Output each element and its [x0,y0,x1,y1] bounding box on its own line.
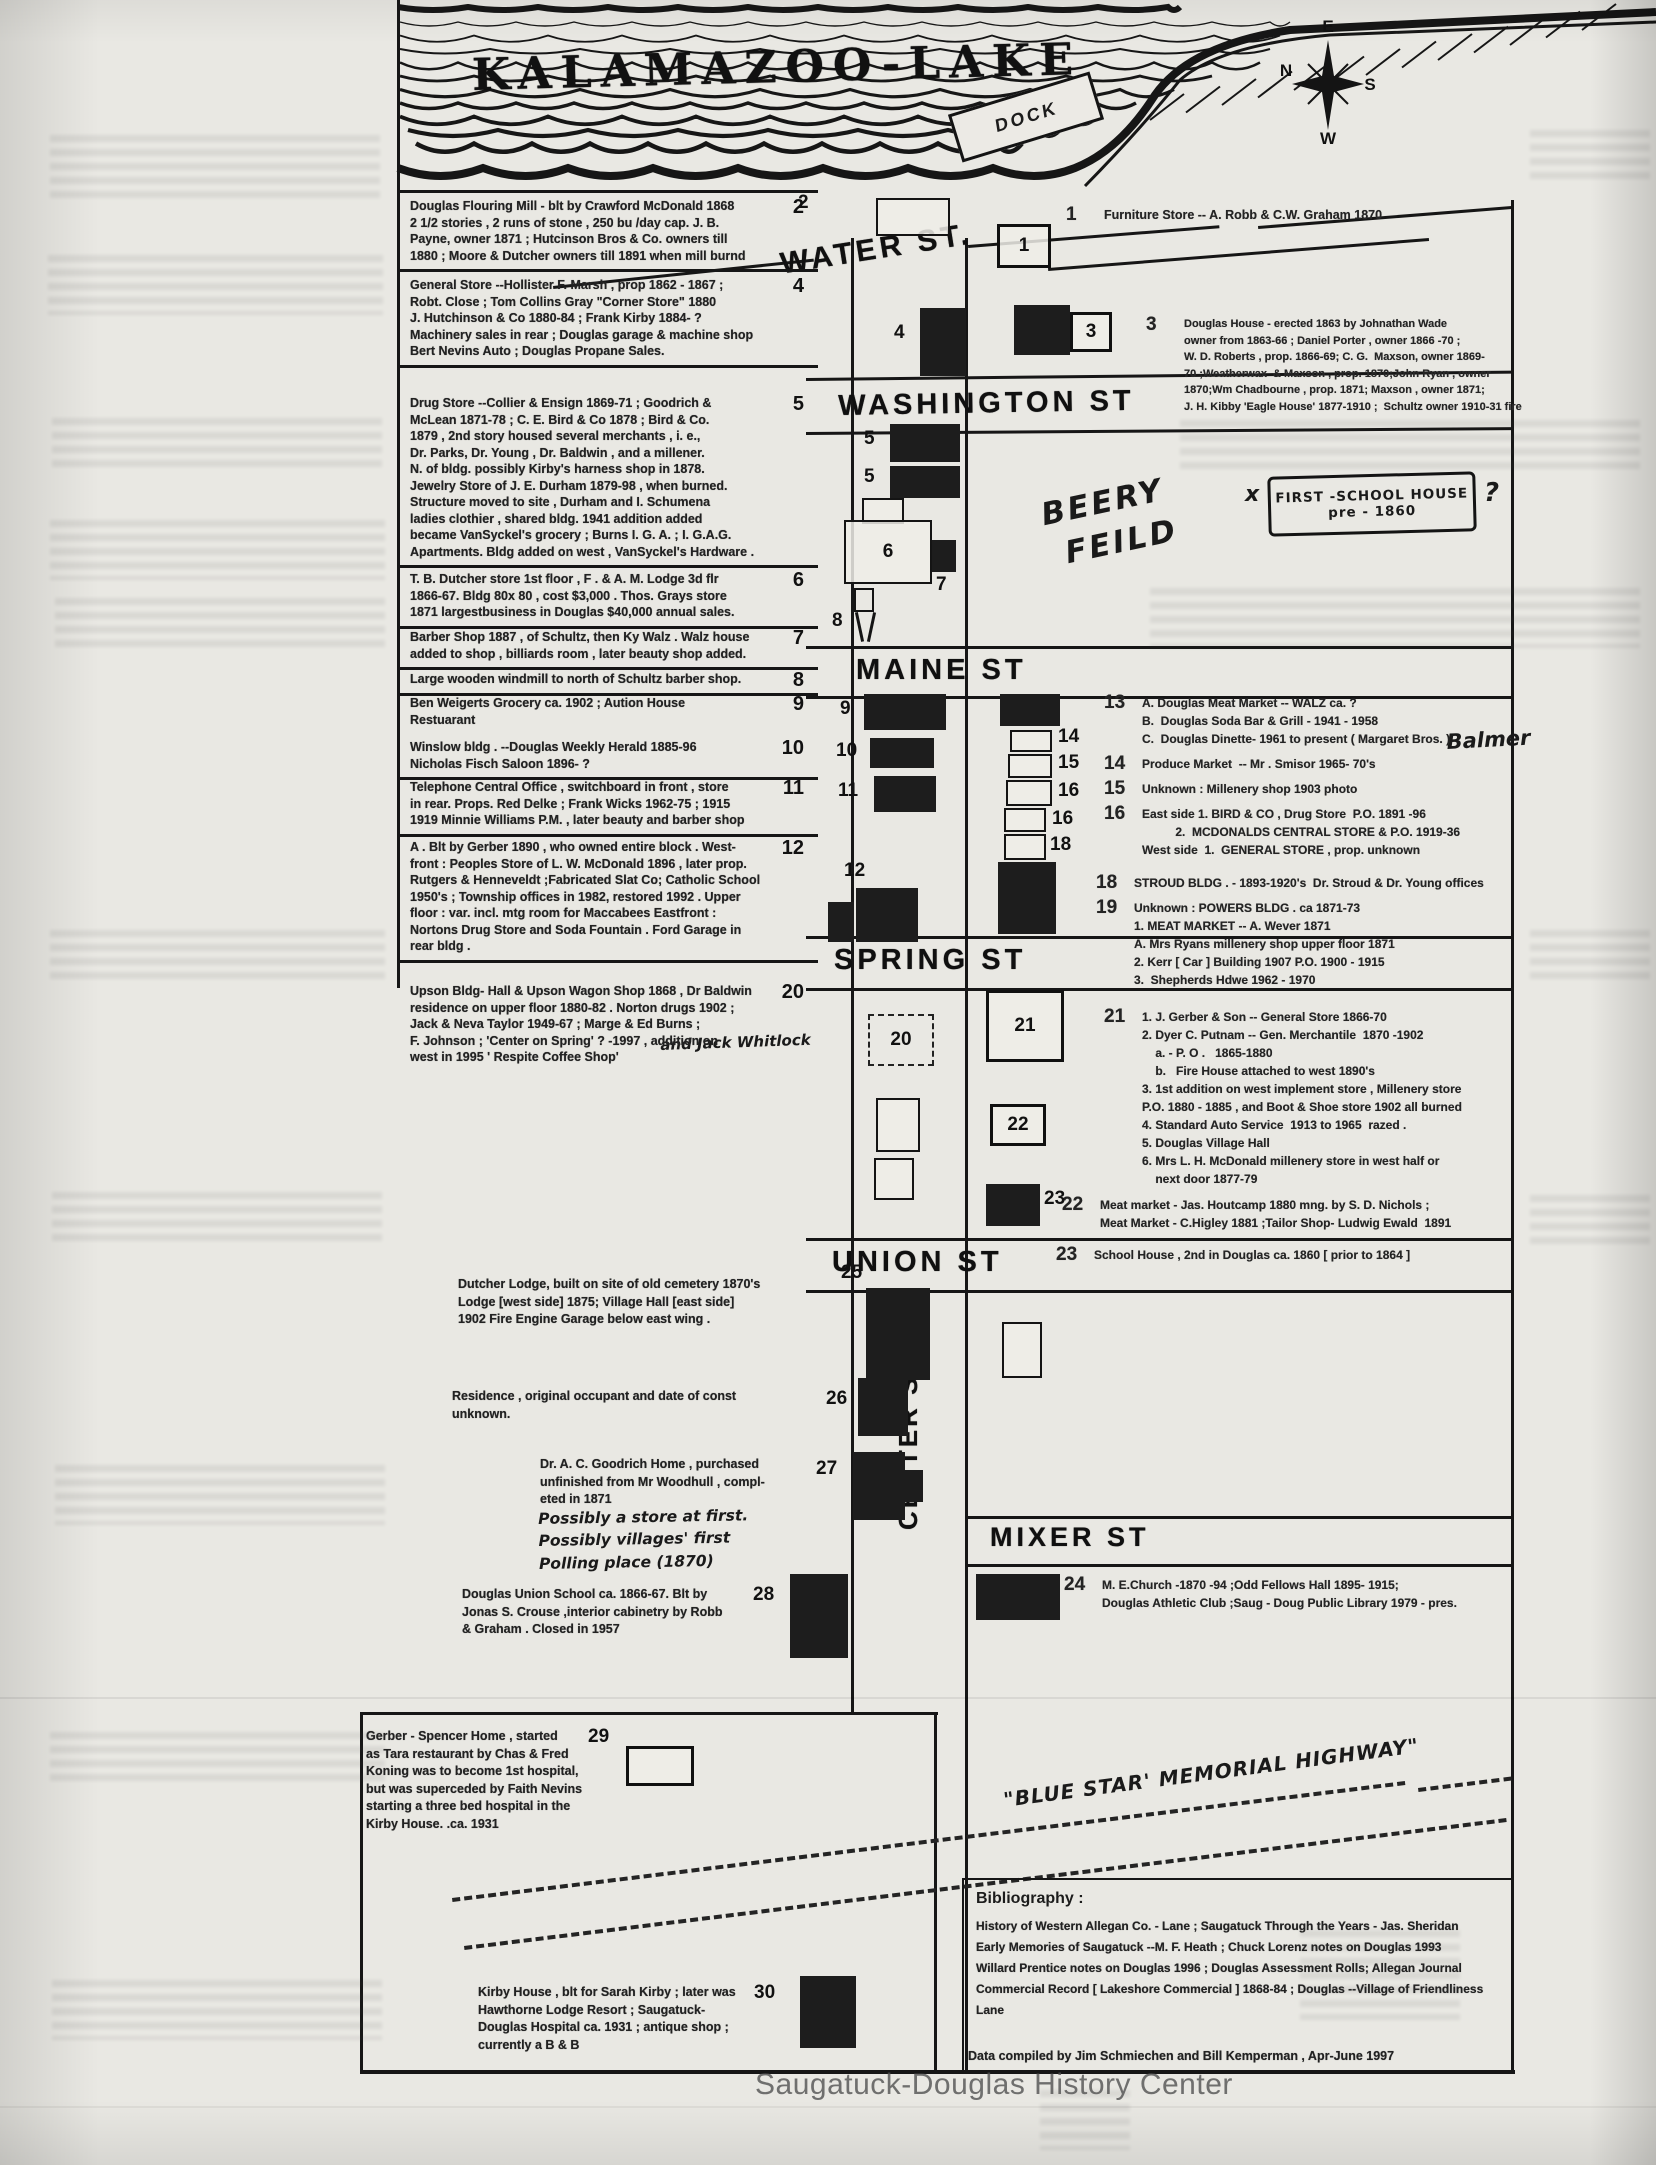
note-number: 13 [1104,692,1125,714]
windmill-head [854,588,874,612]
building-number: 22 [1007,1114,1028,1136]
building-16 [1004,808,1046,832]
note-group: 22Meat market - Jas. Houtcamp 1880 mng. … [1062,1196,1451,1239]
left-note-block: Telephone Central Office , switchboard i… [398,774,818,837]
note-group: 1Furniture Store -- A. Robb & C.W. Graha… [1066,206,1382,232]
scan-noise [52,418,382,473]
first-school-house-box: FIRST -SCHOOL HOUSE pre - 1860 [1267,471,1476,536]
note-number: 9 [793,693,804,716]
building-28 [790,1574,848,1658]
note-text: M. E.Church -1870 -94 ;Odd Fellows Hall … [1102,1576,1457,1612]
note-group: 211. J. Gerber & Son -- General Store 18… [1104,1008,1462,1195]
building-number: 5 [864,428,875,450]
possibly-store-annotation: Possibly a store at first. Possibly vill… [538,1504,749,1575]
building [903,1470,923,1502]
building-number: 16 [1058,780,1079,802]
note-number: 3 [1146,314,1157,336]
building-number: 8 [832,610,843,632]
building-number: 12 [844,860,865,882]
shore-hatch [1222,79,1256,105]
building-30 [800,1976,856,2048]
building-15 [1008,754,1052,778]
building-number: 16 [1052,808,1073,830]
building [976,1574,1060,1620]
note-number: 16 [1104,803,1125,825]
note-text: East side 1. BIRD & CO , Drug Store P.O.… [1142,805,1460,859]
windmill-icon [854,588,878,644]
mixer-st-line [968,1516,1513,1519]
note-text: Drug Store --Collier & Ensign 1869-71 ; … [410,395,778,560]
note-entry: 211. J. Gerber & Son -- General Store 18… [1104,1008,1462,1188]
bibliography-box: Bibliography : History of Western Allega… [962,1878,1513,2070]
note-number: 18 [1096,872,1117,894]
building-number: 3 [1086,321,1097,343]
compass-e: E [1322,17,1333,36]
building-number: 29 [588,1726,609,1748]
center-st-line-lower-west [934,1712,937,2074]
lake-wave [416,144,1022,152]
note-entry: 3Douglas House - erected 1863 by Johnath… [1146,316,1522,415]
note-entry: 19Unknown : POWERS BLDG . ca 1871-73 1. … [1096,899,1484,989]
building-27 [853,1452,905,1520]
lake-wave [398,7,1180,10]
note-entry: 23School House , 2nd in Douglas ca. 1860… [1056,1246,1410,1264]
building-19 [998,862,1056,934]
blue-star-highway-line [1418,1777,1512,1792]
standalone-note: Douglas Union School ca. 1866-67. Blt by… [462,1586,762,1639]
bibliography-heading: Bibliography : [976,1890,1499,1908]
note-text: Ben Weigerts Grocery ca. 1902 ; Aution H… [410,695,778,728]
building-10 [870,738,934,768]
building-number: 27 [816,1458,837,1480]
note-text: General Store --Hollister F. Marsh , pro… [410,277,778,360]
note-number: 11 [783,777,804,800]
note-text: Upson Bldg- Hall & Upson Wagon Shop 1868… [410,983,778,1066]
building-5 [890,424,960,462]
building-12 [856,888,918,942]
note-number: 19 [1096,897,1117,919]
note-text: Produce Market -- Mr . Smisor 1965- 70's [1142,755,1460,773]
building-number: 30 [754,1982,775,2004]
left-note-block: Douglas Flouring Mill - blt by Crawford … [398,193,818,272]
note-group: 23School House , 2nd in Douglas ca. 1860… [1056,1246,1410,1271]
building-number: 15 [1058,752,1079,774]
right-map-border [1511,200,1514,2072]
building-23 [986,1184,1040,1226]
building-4 [920,308,966,376]
building-number: 20 [890,1029,911,1051]
note-text: Unknown : Millenery shop 1903 photo [1142,780,1460,798]
scan-noise [50,520,385,580]
building-25 [866,1288,930,1380]
building-20: 20 [868,1014,934,1066]
water-st-line [1048,238,1429,271]
note-text: Douglas House - erected 1863 by Johnatha… [1184,316,1522,415]
note-text: Unknown : POWERS BLDG . ca 1871-73 1. ME… [1134,899,1484,989]
building-number: 9 [840,698,851,720]
scan-noise [52,1192,382,1242]
first-school-house-date: pre - 1860 [1328,503,1416,521]
scanned-map-page: KALAMAZOO-LAKE DOCK E N S W WATER ST. WA… [0,0,1656,2165]
building-21: 21 [986,990,1064,1062]
shore-hatch [1438,34,1472,60]
note-text: A . Blt by Gerber 1890 , who owned entir… [410,839,778,955]
building-3: 3 [1070,312,1112,352]
building-6: 6 [844,520,932,584]
center-st-line-east [965,238,968,2074]
dock-text: DOCK [993,97,1058,137]
note-entry: 18STROUD BLDG . - 1893-1920's Dr. Stroud… [1096,874,1484,892]
note-text: Meat market - Jas. Houtcamp 1880 mng. by… [1100,1196,1451,1232]
compass-w: W [1320,129,1337,146]
paper-crease [0,1697,1656,1699]
left-note-block: General Store --Hollister F. Marsh , pro… [398,272,818,368]
building-14 [1010,730,1052,752]
note-number: 23 [1056,1244,1077,1266]
scan-noise [55,1465,385,1525]
note-text: T. B. Dutcher store 1st floor , F . & A.… [410,571,778,621]
street-label-washington: WASHINGTON ST [838,385,1135,423]
building-number: 6 [883,541,894,563]
building-number: 2 [798,192,809,214]
building-number: 1 [1019,235,1030,257]
building-2 [876,198,950,236]
watermark-text: Saugatuck-Douglas History Center [755,2068,1233,2102]
left-note-block: Ben Weigerts Grocery ca. 1902 ; Aution H… [398,690,818,733]
note-group: 24M. E.Church -1870 -94 ;Odd Fellows Hal… [1064,1576,1457,1619]
building-29 [626,1746,694,1786]
building [1002,1322,1042,1378]
building-11 [874,776,936,812]
scan-noise [50,1732,385,1787]
building-16 [1006,780,1052,806]
building-number: 7 [936,574,947,596]
building-13 [1000,694,1060,726]
scan-noise [50,930,385,985]
compass-n: N [1280,61,1292,80]
note-text: School House , 2nd in Douglas ca. 1860 [… [1094,1246,1410,1264]
left-note-block: T. B. Dutcher store 1st floor , F . & A.… [398,566,818,629]
building-number: 25 [841,1262,862,1284]
left-note-block: A . Blt by Gerber 1890 , who owned entir… [398,834,818,963]
note-group: 3Douglas House - erected 1863 by Johnath… [1146,316,1522,422]
note-number: 5 [793,393,804,416]
scan-noise [55,598,385,648]
note-number: 8 [793,669,804,692]
shore-hatch [1402,42,1436,68]
credit-line: Data compiled by Jim Schmiechen and Bill… [968,2048,1394,2065]
note-text: A. Douglas Meat Market -- WALZ ca. ? B. … [1142,694,1460,748]
street-label-mixer: MIXER ST [990,1522,1150,1553]
standalone-note: Dr. A. C. Goodrich Home , purchased unfi… [540,1456,830,1509]
note-group: 18STROUD BLDG . - 1893-1920's Dr. Stroud… [1096,874,1484,996]
building-5 [890,466,960,498]
scan-noise [1530,930,1650,985]
scan-noise [52,1980,382,2040]
note-number: 22 [1062,1194,1083,1216]
street-label-spring: SPRING ST [834,944,1026,977]
building-number: 26 [826,1388,847,1410]
note-number: 6 [793,569,804,592]
note-text: Telephone Central Office , switchboard i… [410,779,778,829]
note-entry: 24M. E.Church -1870 -94 ;Odd Fellows Hal… [1064,1576,1457,1612]
building-number: 28 [753,1584,774,1606]
building [876,1098,920,1152]
standalone-note: Dutcher Lodge, built on site of old ceme… [458,1276,808,1329]
bottom-box-left-border [360,1712,363,2072]
lake-water [0,0,1656,220]
note-number: 12 [782,837,804,860]
windmill-leg [867,612,876,642]
note-number: 21 [1104,1006,1125,1028]
mixer-st-line [968,1564,1513,1567]
shore-hatch [1186,87,1220,113]
note-text: Large wooden windmill to north of Schult… [410,671,778,688]
note-number: 15 [1104,778,1125,800]
compass-rose-icon: E N S W [1278,14,1378,146]
standalone-note: Gerber - Spencer Home , started as Tara … [366,1728,606,1833]
note-number: 24 [1064,1574,1085,1596]
note-number: 1 [1066,204,1077,226]
windmill-leg [855,612,864,642]
note-number: 4 [793,275,804,298]
note-text: Douglas Flouring Mill - blt by Crawford … [410,198,778,264]
blue-star-highway-label: "BLUE STAR' MEMORIAL HIGHWAY" [1002,1733,1420,1811]
standalone-note: Kirby House , blt for Sarah Kirby ; late… [478,1984,788,2054]
building-number: 14 [1058,726,1079,748]
building-number: 4 [894,322,905,344]
building-number: 11 [838,780,858,802]
note-entry: 13A. Douglas Meat Market -- WALZ ca. ? B… [1104,694,1460,748]
note-number: 14 [1104,753,1125,775]
left-note-block: Upson Bldg- Hall & Upson Wagon Shop 1868… [398,978,818,1071]
lake-wave [400,22,1290,26]
building-18 [1004,834,1046,860]
note-entry: 15Unknown : Millenery shop 1903 photo [1104,780,1460,798]
building-number: 5 [864,466,875,488]
note-text: STROUD BLDG . - 1893-1920's Dr. Stroud &… [1134,874,1484,892]
paper-crease [0,2106,1656,2108]
building [874,1158,914,1200]
building-9 [864,694,946,730]
left-note-block: Drug Store --Collier & Ensign 1869-71 ; … [398,390,818,568]
building-22: 22 [990,1104,1046,1146]
note-text: Barber Shop 1887 , of Schultz, then Ky W… [410,629,778,662]
building-7 [932,540,956,572]
note-entry: 16East side 1. BIRD & CO , Drug Store P.… [1104,805,1460,859]
building-number: 21 [1014,1015,1035,1037]
note-number: 7 [793,627,804,650]
street-label-maine: MAINE ST [856,654,1027,687]
building-number: 23 [1044,1188,1065,1210]
note-group: 13A. Douglas Meat Market -- WALZ ca. ? B… [1104,694,1460,866]
note-text: 1. J. Gerber & Son -- General Store 1866… [1142,1008,1462,1188]
maine-st-line [806,646,1513,649]
building [1014,305,1070,355]
building-number: 18 [1050,834,1071,856]
building [828,902,854,942]
note-text: Furniture Store -- A. Robb & C.W. Graham… [1104,206,1382,225]
left-note-block: Barber Shop 1887 , of Schultz, then Ky W… [398,624,818,670]
note-entry: 1Furniture Store -- A. Robb & C.W. Graha… [1066,206,1382,225]
bibliography-text: History of Western Allegan Co. - Lane ; … [976,1916,1499,2021]
note-number: 10 [782,737,804,760]
question-mark: ? [1484,478,1499,508]
x-mark: x [1245,482,1259,507]
note-text: Winslow bldg . --Douglas Weekly Herald 1… [410,739,778,772]
compass-s: S [1364,75,1375,94]
note-number: 20 [782,981,804,1004]
note-entry: 22Meat market - Jas. Houtcamp 1880 mng. … [1062,1196,1451,1232]
building-26 [858,1378,908,1436]
building-1: 1 [997,224,1051,268]
scan-noise [1530,1195,1650,1245]
standalone-note: Residence , original occupant and date o… [452,1388,792,1423]
note-entry: 14Produce Market -- Mr . Smisor 1965- 70… [1104,755,1460,773]
scan-noise [48,255,383,315]
scan-noise [1150,588,1640,648]
building-number: 10 [836,740,857,762]
